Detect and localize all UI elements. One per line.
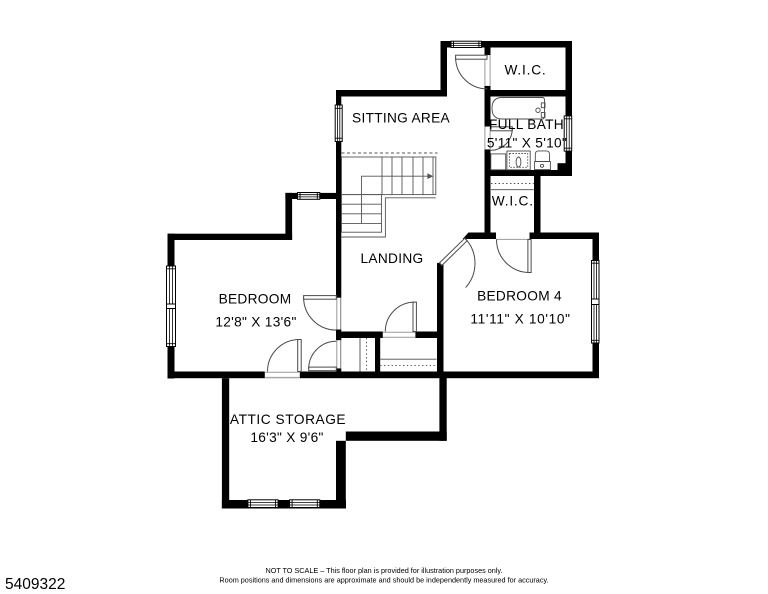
svg-text:5409322: 5409322 [5,576,65,593]
svg-text:11'11" X 10'10": 11'11" X 10'10" [470,312,570,327]
svg-text:BEDROOM: BEDROOM [219,292,292,307]
svg-text:W.I.C.: W.I.C. [504,63,546,78]
svg-text:BEDROOM 4: BEDROOM 4 [477,289,562,304]
svg-text:ATTIC STORAGE: ATTIC STORAGE [230,412,346,427]
svg-text:LANDING: LANDING [361,251,424,266]
svg-text:NOT TO SCALE – This floor plan: NOT TO SCALE – This floor plan is provid… [265,566,502,575]
svg-text:W.I.C.: W.I.C. [492,193,534,208]
svg-text:Room positions and dimensions: Room positions and dimensions are approx… [219,575,548,584]
svg-text:16'3" X 9'6": 16'3" X 9'6" [250,430,323,445]
svg-text:SITTING AREA: SITTING AREA [352,111,450,126]
svg-text:5'11" X 5'10": 5'11" X 5'10" [487,136,567,151]
svg-text:12'8" X 13'6": 12'8" X 13'6" [215,315,296,330]
svg-text:FULL BATH: FULL BATH [489,117,564,132]
